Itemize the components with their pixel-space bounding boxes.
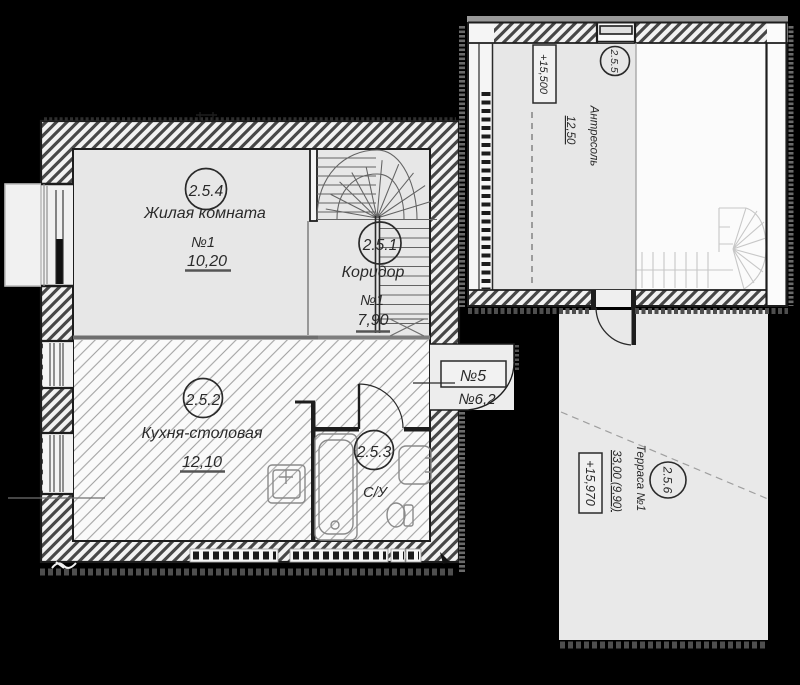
svg-text:33,00 (9,90): 33,00 (9,90) — [610, 450, 622, 512]
svg-text:№5: №5 — [460, 368, 486, 385]
svg-text:2.5.4: 2.5.4 — [188, 183, 224, 200]
svg-text:№1: №1 — [360, 293, 384, 309]
svg-text:2.5.5: 2.5.5 — [608, 48, 620, 73]
svg-text:2.5.3: 2.5.3 — [356, 444, 392, 461]
svg-text:7,90: 7,90 — [357, 312, 388, 329]
svg-text:Антресоль: Антресоль — [588, 105, 600, 167]
svg-text:2.5.2: 2.5.2 — [185, 392, 221, 409]
svg-text:Кухня-столовая: Кухня-столовая — [142, 425, 263, 442]
svg-text:+15,500: +15,500 — [537, 54, 549, 95]
svg-text:2.5.6: 2.5.6 — [661, 466, 675, 494]
svg-text:Коридор: Коридор — [342, 264, 405, 281]
svg-text:Жилая комната: Жилая комната — [143, 205, 266, 222]
svg-text:2.5.1: 2.5.1 — [362, 237, 397, 254]
svg-text:№6,2: №6,2 — [458, 391, 496, 408]
svg-text:12,50: 12,50 — [564, 116, 576, 145]
svg-text:10,20: 10,20 — [187, 253, 227, 270]
svg-text:№1: №1 — [191, 235, 215, 251]
svg-text:+15,970: +15,970 — [583, 460, 597, 506]
svg-text:С/У: С/У — [363, 485, 389, 501]
svg-text:Терраса №1: Терраса №1 — [634, 445, 646, 511]
svg-text:12,10: 12,10 — [182, 454, 222, 471]
